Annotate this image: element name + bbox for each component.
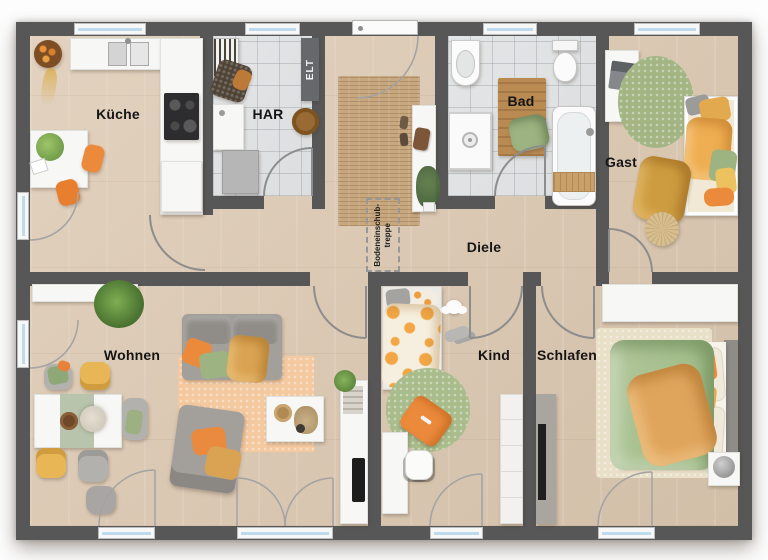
bathtub-faucet [586,128,594,136]
cloud-shelf [446,300,462,314]
chair-bottom-right-gray [78,450,108,482]
gast-rug [618,56,694,148]
attic-ladder-outline: Bodeneinschub- treppe [366,198,400,272]
window-glass [22,196,25,236]
floorplan-canvas: Küche ELT HAR Bodeneinschub- treppe Diel… [0,0,768,560]
dining-flowers [80,406,106,432]
entry-plant-pot [423,202,435,212]
front-door-handle [358,26,363,31]
wohnen-plant-small [334,370,356,392]
window-glass [249,28,296,31]
terrace-door-schlafen [598,527,655,539]
kind-desk [382,432,408,514]
window-diele-left [17,192,29,240]
toilet-tank [552,40,578,51]
room-label-har: HAR [253,106,284,122]
dryer-unit [222,150,259,194]
terrace-door-wohnen-left [98,527,155,539]
coffee-table-plate [274,404,292,422]
window-glass [434,532,479,535]
ottoman [86,486,116,514]
sofa-throw-mustard [226,334,271,384]
window-wohnen-left [17,320,29,368]
wall-kind-schlafen-pier [523,272,541,286]
wohnen-plant-large [94,280,144,328]
window-gast [634,23,700,35]
shower-head-dot [468,138,472,142]
window-glass [78,28,142,31]
elt-label: ELT [305,59,316,80]
window-glass [22,324,25,364]
terrace-door-kind [430,527,483,539]
window-glass [602,532,651,535]
round-basket [292,108,319,135]
room-label-wohnen: Wohnen [104,347,160,363]
elt-panel: ELT [301,38,319,101]
schlafen-tv-screen [538,424,546,500]
dining-bowl [60,412,78,430]
washing-machine [213,104,244,150]
window-har [245,23,300,35]
chair-right-cloth [124,409,143,435]
bathtub-caddy [553,172,595,192]
washer-dial [219,110,225,116]
kitchen-sink-2 [130,42,149,66]
window-glass [487,28,533,31]
toilet-bowl [553,52,577,82]
room-label-schlafen: Schlafen [537,347,597,363]
window-glass [638,28,696,31]
gast-pillow-orange [703,187,734,207]
window-glass [102,532,151,535]
kind-wardrobe [500,394,523,524]
table-plant [36,133,64,161]
stove [164,93,199,140]
room-label-kind: Kind [478,347,510,363]
window-bad [483,23,537,35]
wall-kind-top [368,272,468,286]
fruit-basket [34,40,62,68]
nightstand-lamp [713,456,735,478]
wall-kind-schlafen [523,286,536,526]
attic-label-line1: Bodeneinschub- [374,204,383,267]
bathroom-sink-basin [456,50,475,78]
bed-headboard [724,340,738,470]
room-label-diele: Diele [467,239,501,255]
entry-shoe-2 [399,133,408,147]
window-kueche [74,23,146,35]
tv-screen [352,458,365,502]
room-label-bad: Bad [507,93,534,109]
kitchen-faucet [125,38,131,44]
coffee-table-vase [296,424,305,433]
fridge [161,161,202,212]
terrace-door-wohnen-double [237,527,333,539]
kitchen-sink [108,42,127,66]
chair-top-right-yellow [80,362,110,390]
chair-bottom-left-yellow [36,448,66,478]
room-label-gast: Gast [605,154,637,170]
gast-pouf [645,212,679,246]
kind-desk-chair [405,450,433,480]
wall-bad-bottom-left [448,196,495,209]
window-glass [241,532,329,535]
room-label-kueche: Küche [96,106,140,122]
schlafen-wardrobe [602,284,738,322]
wall-wohnen-kind [368,286,381,526]
wall-har-bottom [213,196,264,209]
attic-label-line2: treppe [384,223,393,247]
